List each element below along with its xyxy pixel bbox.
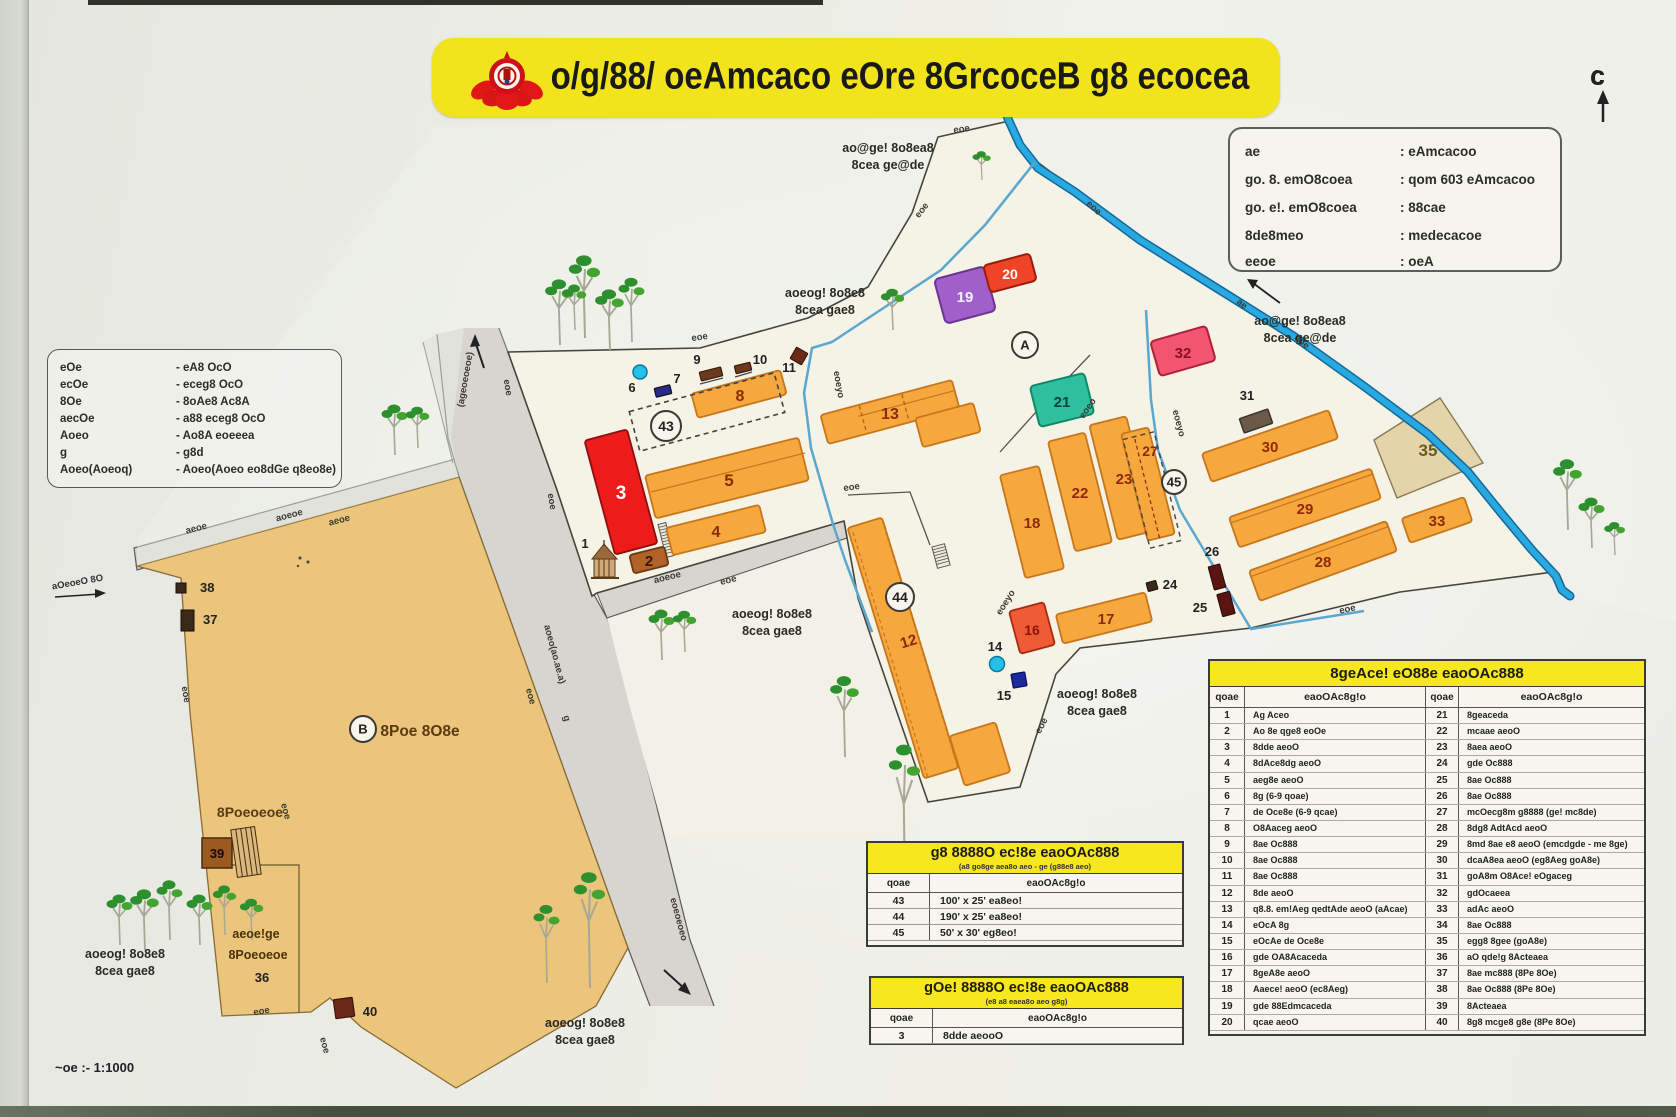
svg-text:8: 8 <box>736 388 745 405</box>
svg-text:30: 30 <box>1262 439 1279 456</box>
svg-text:26: 26 <box>1205 544 1219 559</box>
svg-text:aoeog! 8o8e8: aoeog! 8o8e8 <box>1057 687 1137 701</box>
svg-text:8cea gae8: 8cea gae8 <box>555 1033 615 1047</box>
svg-text:27: 27 <box>1142 443 1158 459</box>
svg-text:25: 25 <box>1193 600 1207 615</box>
svg-text:19: 19 <box>957 289 974 306</box>
svg-text:39: 39 <box>210 846 224 861</box>
svg-text:8cea gae8: 8cea gae8 <box>1067 704 1127 718</box>
svg-text:ao@ge! 8o8ea8: ao@ge! 8o8ea8 <box>842 141 933 155</box>
svg-text:43: 43 <box>658 418 674 434</box>
svg-text:8cea ge@de: 8cea ge@de <box>852 158 925 172</box>
svg-text:5: 5 <box>724 471 733 490</box>
svg-text:31: 31 <box>1240 388 1254 403</box>
svg-text:28: 28 <box>1315 554 1332 571</box>
svg-text:11: 11 <box>782 360 796 375</box>
svg-text:A: A <box>1020 338 1030 353</box>
svg-text:45: 45 <box>1167 475 1181 490</box>
svg-text:8Poeoeoe: 8Poeoeoe <box>217 804 283 820</box>
svg-text:8cea gae8: 8cea gae8 <box>742 624 802 638</box>
svg-text:17: 17 <box>1098 611 1115 628</box>
svg-text:29: 29 <box>1297 501 1314 518</box>
svg-text:8Poe 8O8e: 8Poe 8O8e <box>380 723 460 740</box>
svg-text:14: 14 <box>988 639 1003 654</box>
svg-text:eoe: eoe <box>953 123 971 136</box>
svg-text:8cea gae8: 8cea gae8 <box>795 303 855 317</box>
svg-text:22: 22 <box>1072 485 1089 502</box>
svg-text:37: 37 <box>203 612 217 627</box>
svg-text:aoeog! 8o8e8: aoeog! 8o8e8 <box>732 607 812 621</box>
svg-text:21: 21 <box>1054 394 1071 411</box>
svg-text:eoe: eoe <box>691 331 709 344</box>
svg-text:24: 24 <box>1163 577 1178 592</box>
svg-text:40: 40 <box>363 1004 377 1019</box>
svg-text:10: 10 <box>753 352 767 367</box>
svg-text:eoe: eoe <box>253 1005 271 1019</box>
svg-text:32: 32 <box>1175 345 1192 362</box>
svg-text:4: 4 <box>712 524 721 541</box>
svg-text:~oe :- 1:1000: ~oe :- 1:1000 <box>55 1060 134 1075</box>
svg-text:44: 44 <box>892 589 908 605</box>
svg-text:eoe: eoe <box>179 686 193 704</box>
svg-text:3: 3 <box>616 483 627 504</box>
svg-text:23: 23 <box>1116 471 1133 488</box>
svg-text:38: 38 <box>200 580 214 595</box>
svg-text:18: 18 <box>1024 515 1041 532</box>
svg-text:33: 33 <box>1429 513 1446 530</box>
svg-text:9: 9 <box>693 352 700 367</box>
svg-text:eoe: eoe <box>317 1036 332 1055</box>
svg-text:20: 20 <box>1002 266 1018 282</box>
svg-text:aoeog! 8o8e8: aoeog! 8o8e8 <box>785 286 865 300</box>
svg-text:aeoe!ge: aeoe!ge <box>232 927 279 941</box>
svg-text:eoe: eoe <box>1338 602 1356 616</box>
svg-text:aoeog! 8o8e8: aoeog! 8o8e8 <box>85 947 165 961</box>
svg-text:aoeog! 8o8e8: aoeog! 8o8e8 <box>545 1016 625 1030</box>
svg-text:2: 2 <box>645 553 653 570</box>
svg-text:8cea ge@de: 8cea ge@de <box>1264 331 1337 345</box>
svg-text:eoe: eoe <box>843 481 861 494</box>
svg-text:6: 6 <box>628 380 635 395</box>
svg-text:8Poeoeoe: 8Poeoeoe <box>228 948 287 962</box>
svg-text:36: 36 <box>255 970 269 985</box>
svg-text:15: 15 <box>997 688 1011 703</box>
svg-text:ao@ge! 8o8ea8: ao@ge! 8o8ea8 <box>1254 314 1345 328</box>
svg-text:16: 16 <box>1024 622 1040 638</box>
svg-text:8cea gae8: 8cea gae8 <box>95 964 155 978</box>
svg-text:B: B <box>358 722 367 737</box>
svg-text:1: 1 <box>581 536 588 551</box>
svg-text:13: 13 <box>881 406 899 423</box>
svg-text:7: 7 <box>673 371 680 386</box>
